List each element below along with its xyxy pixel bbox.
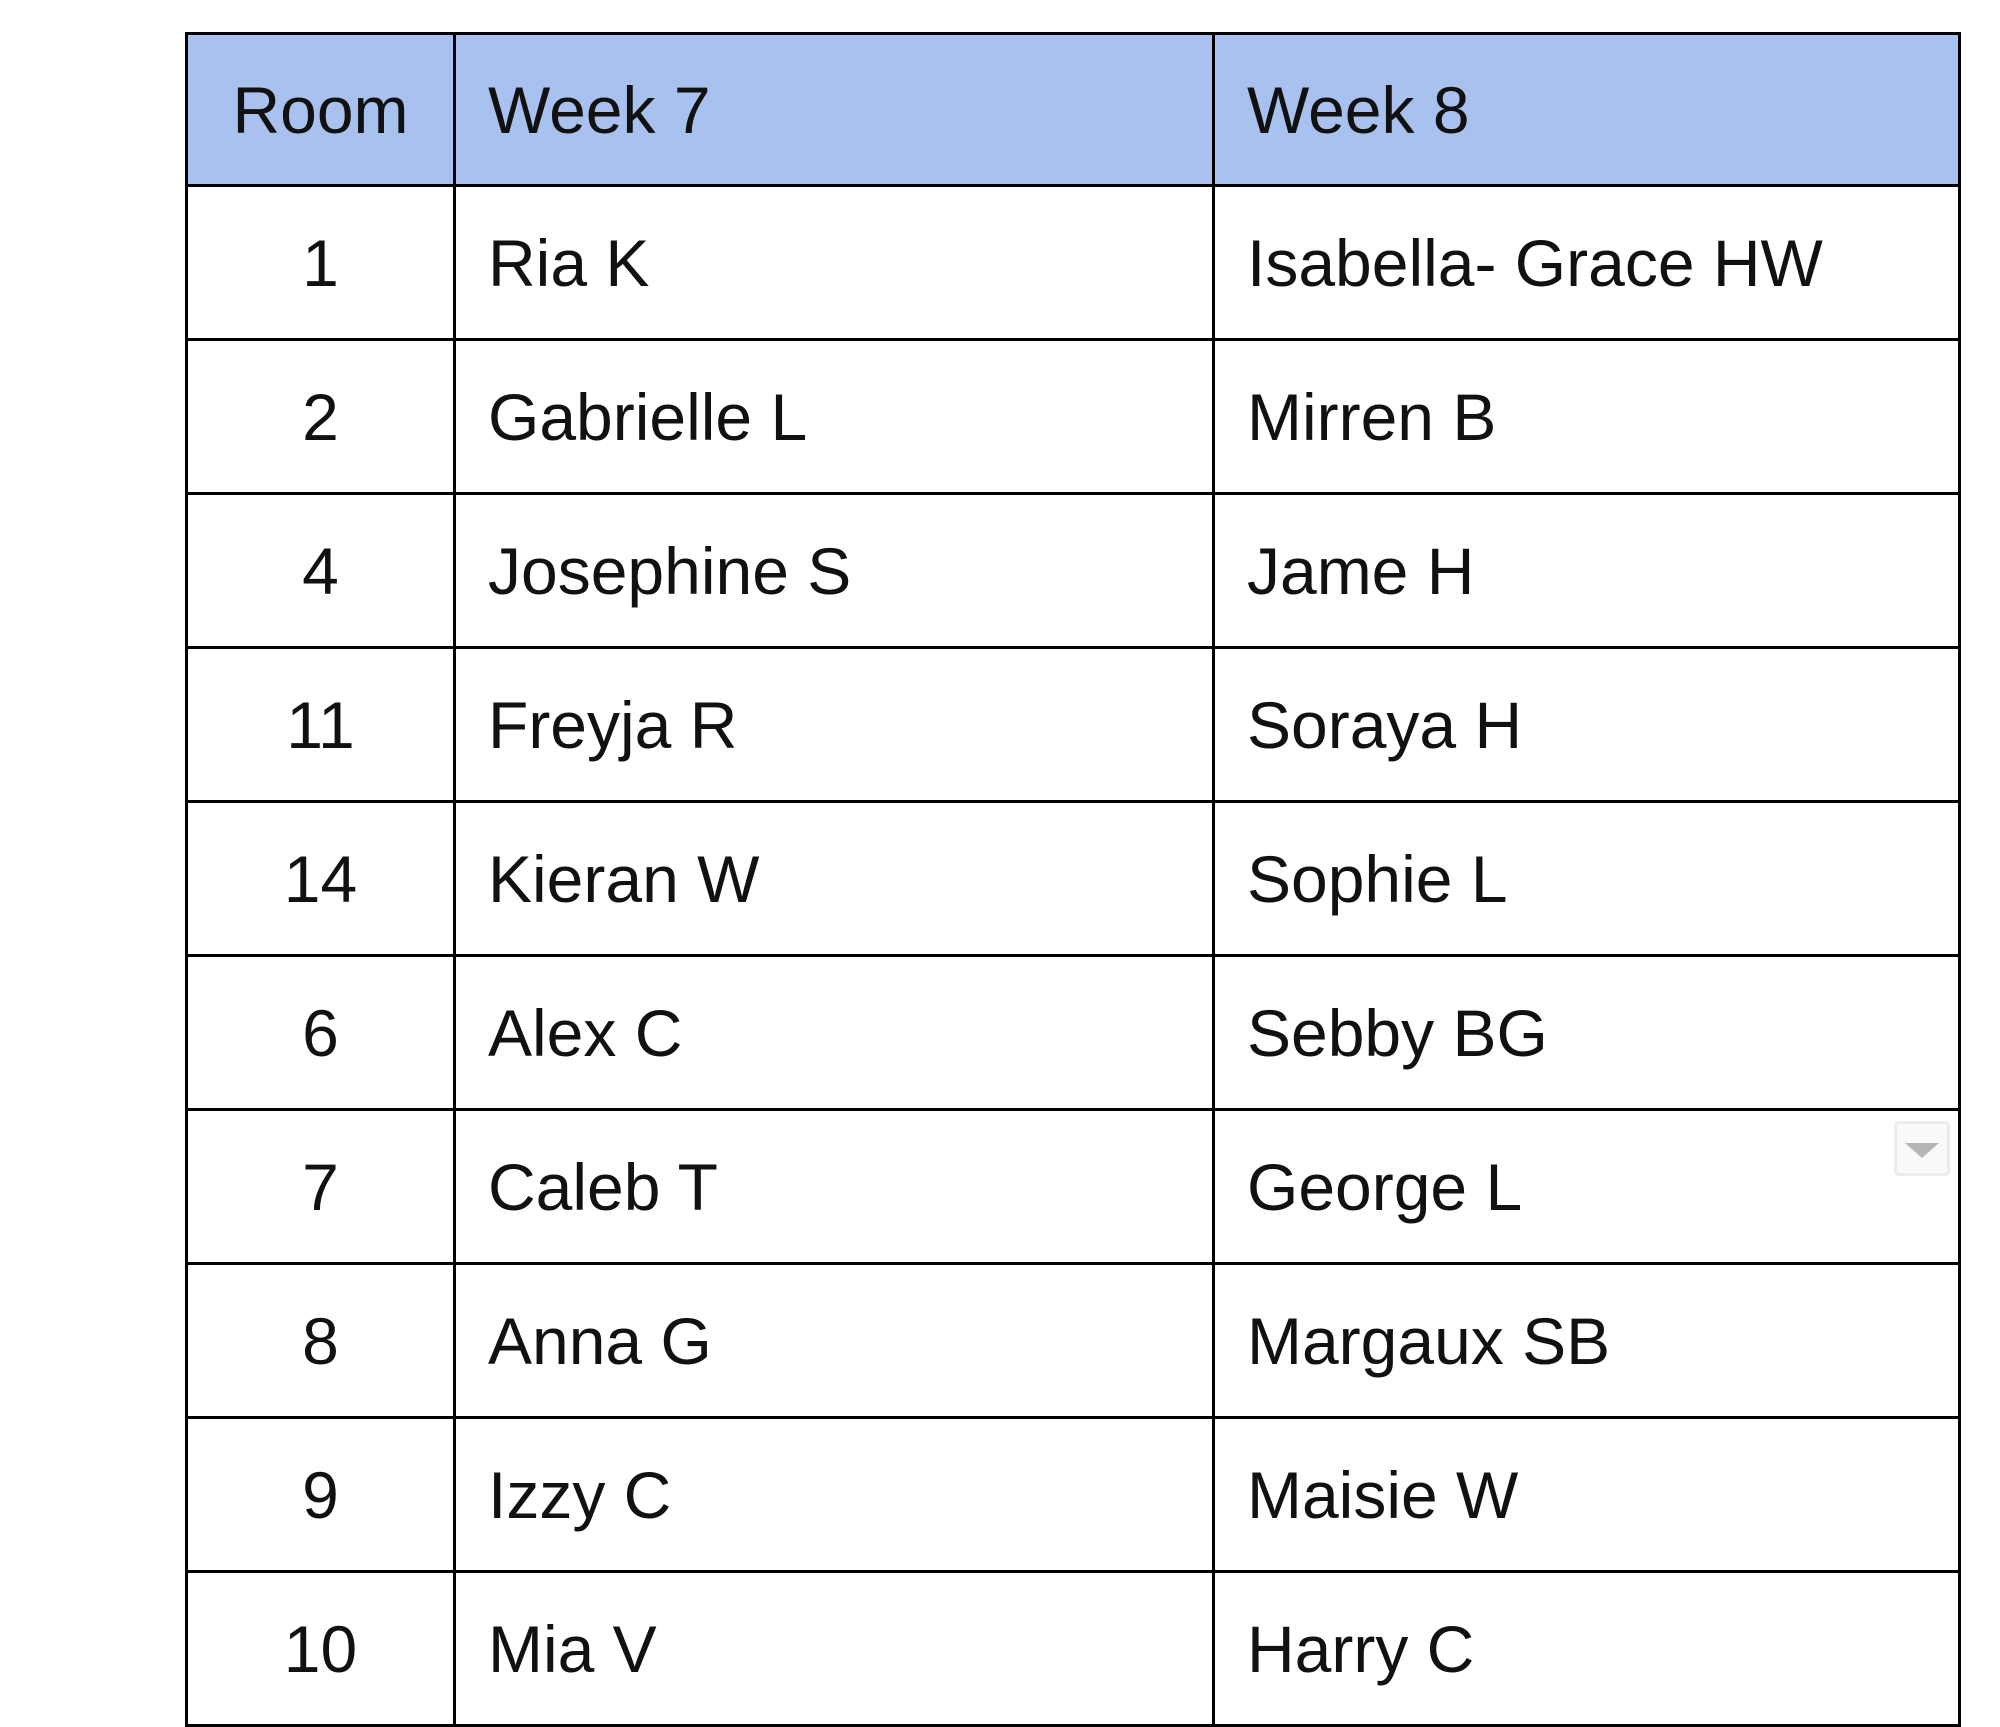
room-cell[interactable]: 9 xyxy=(187,1418,455,1572)
week7-cell[interactable]: Kieran W xyxy=(455,802,1214,956)
room-cell[interactable]: 1 xyxy=(187,186,455,340)
week8-cell[interactable]: Maisie W xyxy=(1214,1418,1960,1572)
week8-cell[interactable]: Margaux SB xyxy=(1214,1264,1960,1418)
room-cell[interactable]: 6 xyxy=(187,956,455,1110)
table-row: 14 Kieran W Sophie L xyxy=(187,802,1960,956)
table-row: 9 Izzy C Maisie W xyxy=(187,1418,1960,1572)
table-row: 11 Freyja R Soraya H xyxy=(187,648,1960,802)
week8-cell-text: Margaux SB xyxy=(1247,1304,1610,1378)
table-row: 1 Ria K Isabella- Grace HW xyxy=(187,186,1960,340)
week7-cell[interactable]: Alex C xyxy=(455,956,1214,1110)
week8-cell-text: Soraya H xyxy=(1247,688,1522,762)
header-cell-week7[interactable]: Week 7 xyxy=(455,34,1214,186)
week8-cell-text: Maisie W xyxy=(1247,1458,1518,1532)
table-row: 4 Josephine S Jame H xyxy=(187,494,1960,648)
week8-cell-text: George L xyxy=(1247,1150,1522,1224)
week7-cell[interactable]: Freyja R xyxy=(455,648,1214,802)
week7-cell[interactable]: Josephine S xyxy=(455,494,1214,648)
table-row: 10 Mia V Harry C xyxy=(187,1572,1960,1726)
roster-table-body: Room Week 7 Week 8 1 Ria K Isabella- Gra… xyxy=(187,34,1960,1726)
week8-cell[interactable]: Soraya H xyxy=(1214,648,1960,802)
room-cell[interactable]: 4 xyxy=(187,494,455,648)
week8-cell-text: Sophie L xyxy=(1247,842,1508,916)
table-header-row: Room Week 7 Week 8 xyxy=(187,34,1960,186)
table-row: 8 Anna G Margaux SB xyxy=(187,1264,1960,1418)
week7-cell[interactable]: Anna G xyxy=(455,1264,1214,1418)
header-cell-week8[interactable]: Week 8 xyxy=(1214,34,1960,186)
room-cell[interactable]: 8 xyxy=(187,1264,455,1418)
week8-cell[interactable]: Sophie L xyxy=(1214,802,1960,956)
week8-cell[interactable]: Sebby BG xyxy=(1214,956,1960,1110)
week8-cell[interactable]: Isabella- Grace HW xyxy=(1214,186,1960,340)
header-cell-room[interactable]: Room xyxy=(187,34,455,186)
week8-cell-text: Harry C xyxy=(1247,1612,1474,1686)
week7-cell[interactable]: Gabrielle L xyxy=(455,340,1214,494)
week7-cell[interactable]: Ria K xyxy=(455,186,1214,340)
week8-cell-text: Isabella- Grace HW xyxy=(1247,226,1823,300)
week8-cell-text: Sebby BG xyxy=(1247,996,1548,1070)
week8-cell[interactable]: Jame H xyxy=(1214,494,1960,648)
chevron-down-icon xyxy=(1905,1143,1939,1158)
week7-cell[interactable]: Mia V xyxy=(455,1572,1214,1726)
table-row: 7 Caleb T George L xyxy=(187,1110,1960,1264)
room-cell[interactable]: 2 xyxy=(187,340,455,494)
room-cell[interactable]: 14 xyxy=(187,802,455,956)
week7-cell[interactable]: Izzy C xyxy=(455,1418,1214,1572)
week8-cell-text: Mirren B xyxy=(1247,380,1496,454)
week8-cell[interactable]: Mirren B xyxy=(1214,340,1960,494)
table-row: 6 Alex C Sebby BG xyxy=(187,956,1960,1110)
table-row: 2 Gabrielle L Mirren B xyxy=(187,340,1960,494)
room-cell[interactable]: 7 xyxy=(187,1110,455,1264)
room-cell[interactable]: 10 xyxy=(187,1572,455,1726)
room-roster-table: Room Week 7 Week 8 1 Ria K Isabella- Gra… xyxy=(185,32,1961,1727)
week7-cell[interactable]: Caleb T xyxy=(455,1110,1214,1264)
room-cell[interactable]: 11 xyxy=(187,648,455,802)
week8-cell[interactable]: Harry C xyxy=(1214,1572,1960,1726)
week8-cell[interactable]: George L xyxy=(1214,1110,1960,1264)
dropdown-button[interactable] xyxy=(1894,1121,1950,1176)
week8-cell-text: Jame H xyxy=(1247,534,1474,608)
